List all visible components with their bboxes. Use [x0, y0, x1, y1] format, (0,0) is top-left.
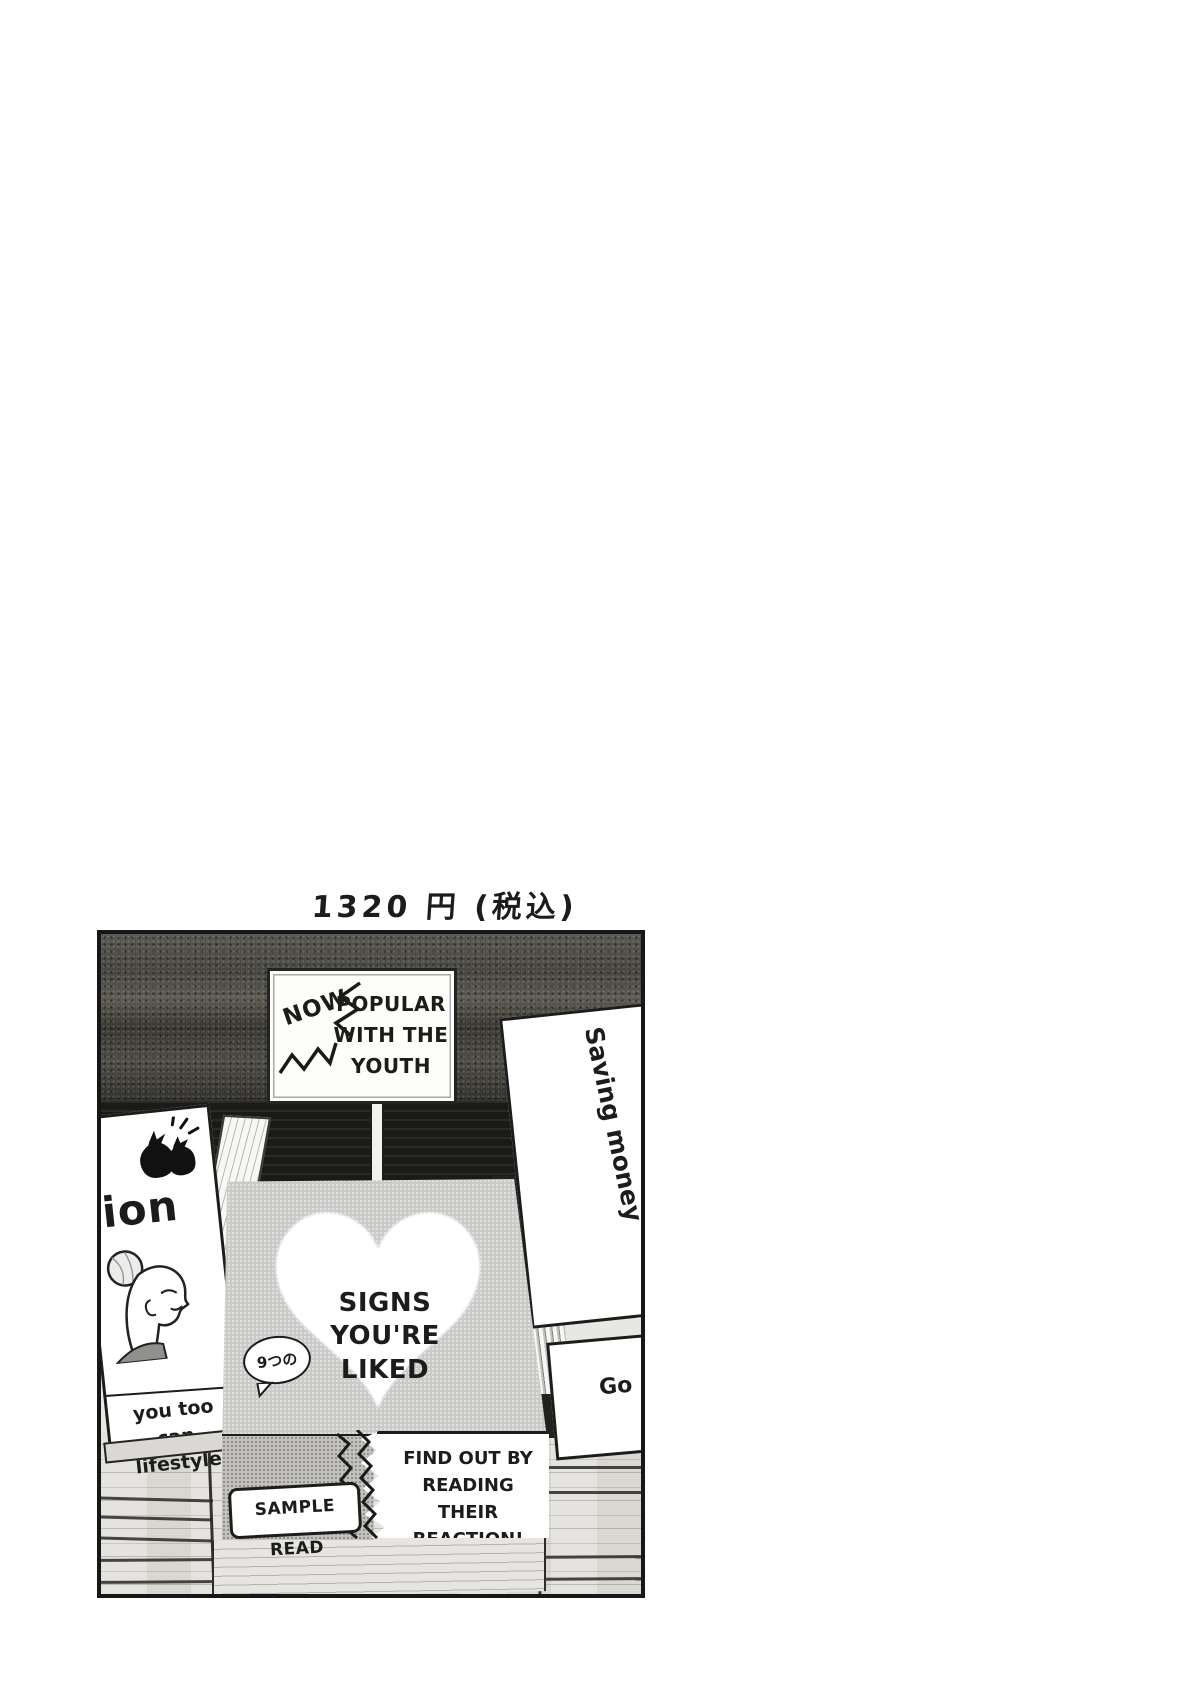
saving-money-title: Saving money — [579, 1024, 645, 1294]
sample-read-tag: SAMPLE READ — [228, 1482, 362, 1540]
floor-line — [543, 1466, 641, 1469]
money-pouch-icon — [122, 1113, 211, 1189]
obi-top-line — [377, 1431, 549, 1434]
go-book-title: Go — [598, 1373, 633, 1401]
count-bubble-label: 9つの — [256, 1347, 298, 1372]
bubble-tail-icon — [255, 1382, 274, 1399]
signboard-message: POPULAR WITH THE YOUTH — [330, 989, 452, 1082]
floor-line — [543, 1491, 641, 1494]
woman-profile-illustration — [97, 1234, 219, 1365]
sign-pole — [370, 1094, 384, 1186]
center-book-title: SIGNS YOU'RE LIKED — [305, 1287, 465, 1387]
signboard: NOW POPULAR WITH THE YOUTH — [267, 968, 457, 1104]
center-book-cover: SIGNS YOU'RE LIKED — [219, 1179, 547, 1439]
manga-page: 1320 円 (税込) tion — [0, 0, 1200, 1707]
left-book-title-fragment: tion — [97, 1181, 181, 1240]
go-book: Go — [546, 1332, 645, 1461]
price-label: 1320 円 (税込) — [283, 882, 606, 926]
stacked-pages — [212, 1535, 546, 1597]
manga-panel: tion you too can lifestyle Saving money … — [97, 930, 645, 1598]
obi-text: FIND OUT BY READING THEIR REACTION! — [395, 1445, 541, 1553]
